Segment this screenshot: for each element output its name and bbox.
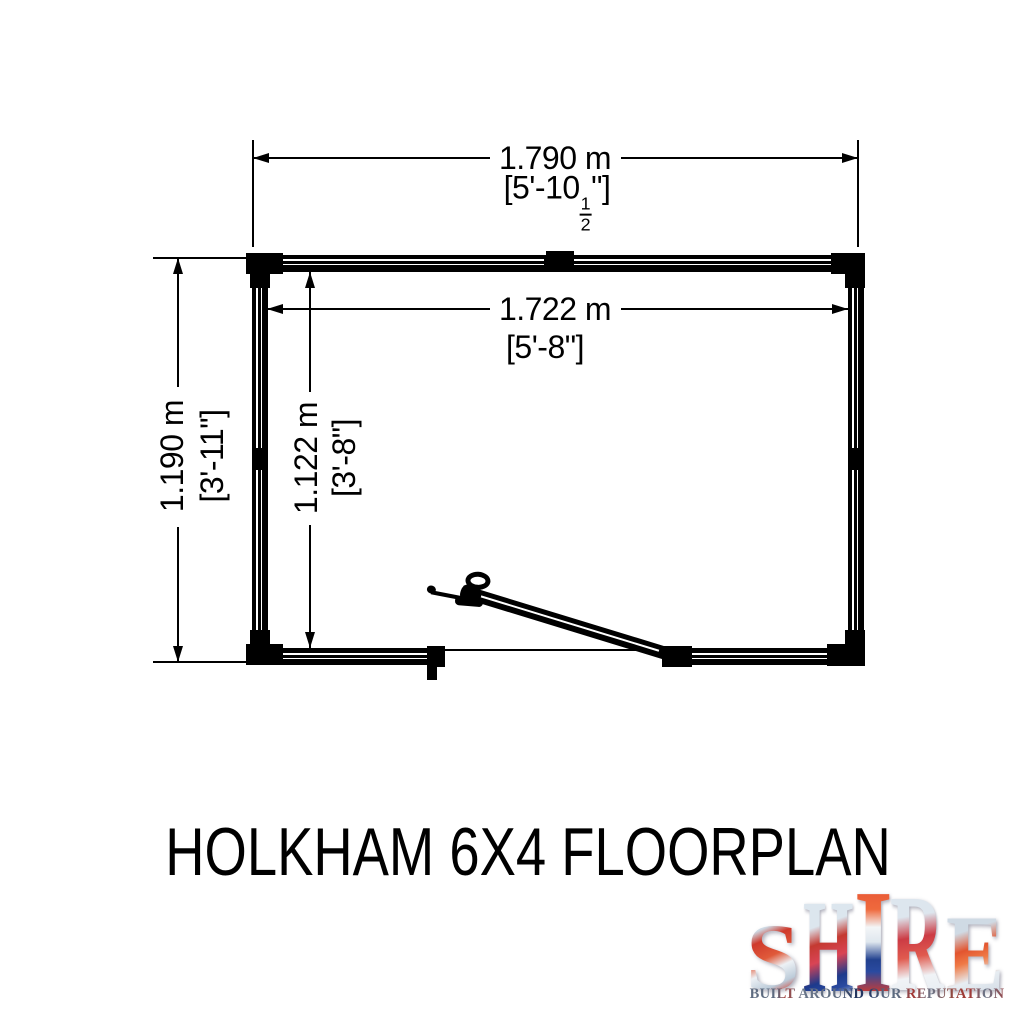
arrowhead-left-icon (267, 304, 283, 314)
cladding-line (857, 470, 859, 644)
floorplan-diagram: 1.790 m [5'-1012"] 1.722 m [5'-8"] 1.190… (0, 0, 1024, 1024)
arrowhead-down-icon (305, 632, 315, 648)
key-shaft-icon (431, 590, 462, 600)
arrowhead-right-icon (842, 153, 858, 163)
outer-depth-imperial-label: [3'-11"] (196, 410, 228, 503)
logo-tagline: BUILT AROUND OUR REPUTATION (742, 986, 1012, 1003)
half-fraction: 12 (580, 195, 591, 235)
dimension-line-outer-depth-top (177, 258, 179, 387)
wall-joint-left (252, 448, 268, 470)
dimension-line-outer-depth-bottom (177, 527, 179, 662)
corner-post-top-left (250, 253, 270, 288)
cladding-line (266, 264, 544, 266)
cladding-line (266, 259, 544, 261)
door-panel-line (475, 594, 659, 652)
cladding-line (266, 658, 428, 660)
dimension-line-outer-width-left (253, 157, 490, 159)
dimension-line-outer-width-right (621, 157, 858, 159)
cladding-line (574, 259, 850, 261)
cladding-line (857, 272, 859, 448)
inner-depth-metric-label: 1.122 m (290, 402, 322, 514)
dimension-line-inner-depth-bottom (309, 525, 311, 648)
cladding-line (852, 470, 854, 644)
dimension-line-inner-depth-top (309, 272, 311, 392)
cladding-line (852, 272, 854, 448)
arrowhead-right-icon (832, 304, 848, 314)
cladding-line (574, 264, 850, 266)
outer-depth-metric-label: 1.190 m (156, 400, 188, 512)
extension-line-left-top (153, 257, 252, 259)
arrowhead-down-icon (173, 646, 183, 662)
inner-depth-imperial-label: [3'-8"] (328, 419, 360, 497)
cladding-line (266, 653, 428, 655)
arrowhead-left-icon (253, 153, 269, 163)
corner-post-bottom-right (845, 630, 865, 665)
door-jamb-left (427, 646, 445, 667)
arrowhead-up-icon (173, 258, 183, 274)
inner-width-imperial-label: [5'-8"] (506, 331, 584, 363)
arrowhead-up-icon (305, 272, 315, 288)
cladding-line (261, 272, 263, 448)
outer-width-imperial-label: [5'-1012"] (504, 172, 611, 235)
imperial-suffix: "] (591, 170, 610, 206)
corner-post-bottom-left (250, 630, 270, 665)
door-jamb-stub (427, 665, 437, 680)
cladding-line (261, 470, 263, 644)
cladding-line (256, 470, 258, 644)
page-title: HOLKHAM 6X4 FLOORPLAN (165, 818, 891, 886)
dimension-line-inner-width-left (267, 308, 490, 310)
inner-width-metric-label: 1.722 m (499, 293, 611, 325)
imperial-prefix: [5'-10 (504, 170, 580, 206)
fraction-numerator: 1 (580, 195, 591, 216)
fraction-denominator: 2 (581, 216, 590, 235)
door-leaf-open (460, 585, 678, 663)
wall-joint-top (546, 251, 574, 272)
dimension-line-inner-width-right (621, 308, 848, 310)
extension-line-left-bottom (153, 661, 252, 663)
wall-joint-right (848, 448, 864, 470)
cladding-line (256, 272, 258, 448)
corner-post-top-right (845, 253, 865, 288)
